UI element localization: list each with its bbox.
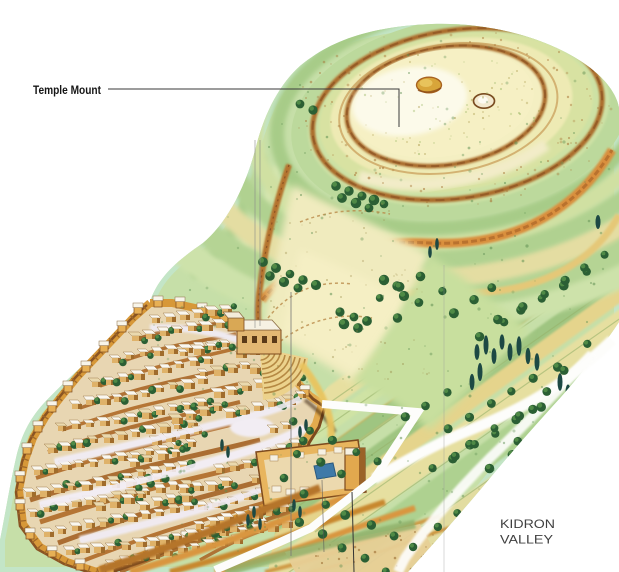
svg-text:Temple Mount: Temple Mount <box>33 85 101 97</box>
svg-text:KIDRON: KIDRON <box>500 519 555 531</box>
svg-text:VALLEY: VALLEY <box>500 535 553 547</box>
